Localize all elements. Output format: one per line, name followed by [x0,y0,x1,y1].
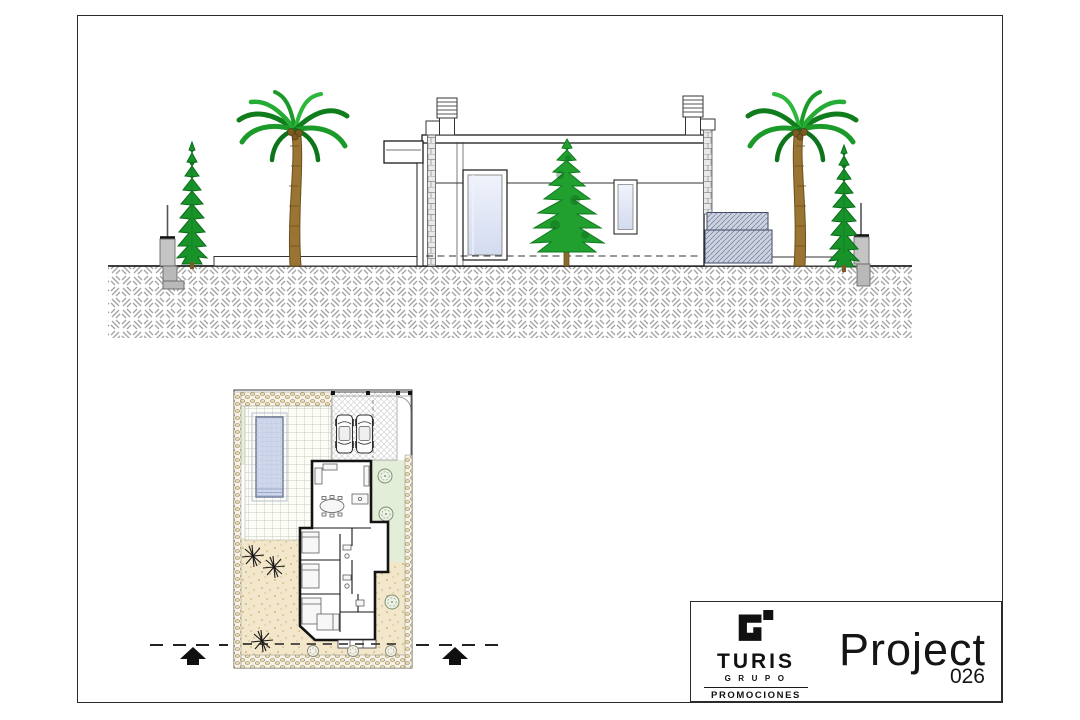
title-block-divider [704,687,808,688]
entrance-arrow-left [180,647,206,665]
palm-tree-left [239,92,347,266]
company-division-label: PROMOCIONES [703,691,809,701]
car-2 [355,415,374,453]
chimney-right [683,96,703,135]
boundary-wall-left [214,257,425,267]
company-name: TURIS [703,651,809,672]
exterior-steps-section [705,213,772,264]
car-1 [335,415,354,453]
chimney-left [437,98,457,135]
garden-tree-1 [378,469,392,483]
project-number: 026 [950,665,985,689]
turis-g-logo-icon [733,610,779,650]
garden-tree-3 [385,595,399,609]
entrance-arrow-right [442,647,468,665]
site-plan [150,390,500,668]
garden-tree-2 [379,507,393,521]
drawing-sheet: TURIS GRUPO PROMOCIONES Project 026 [0,0,1080,720]
ground-section [108,266,912,338]
title-block: TURIS GRUPO PROMOCIONES Project 026 [690,601,1002,702]
cypress-tree-left [177,142,207,269]
front-elevation [108,92,912,338]
window-large [463,170,507,260]
canopy-left [384,141,423,266]
window-small [614,180,637,234]
swimming-pool [256,417,283,497]
line-tree-3 [386,646,397,657]
line-tree-1 [308,646,319,657]
company-group-label: GRUPO [703,675,809,683]
company-brand: TURIS GRUPO PROMOCIONES [703,610,809,701]
line-tree-2 [348,646,359,657]
